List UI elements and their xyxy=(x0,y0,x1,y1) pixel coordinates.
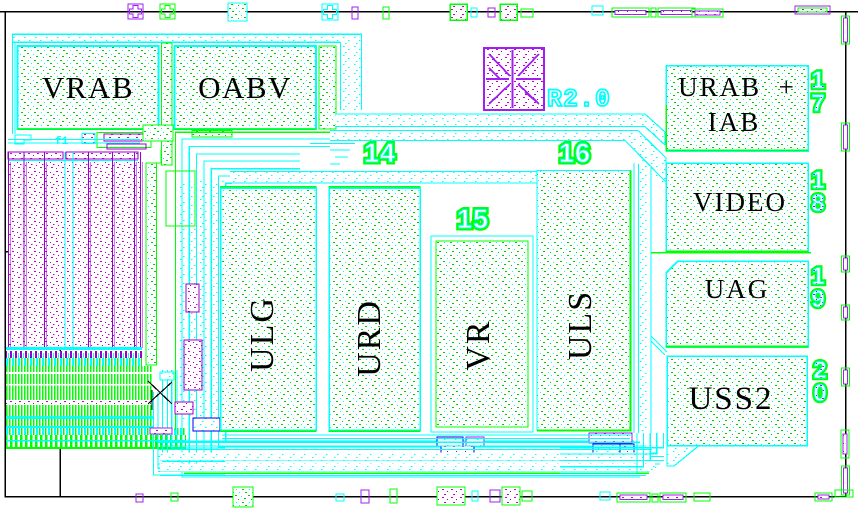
svg-text:URD: URD xyxy=(351,299,388,377)
svg-text:VIDEO: VIDEO xyxy=(693,187,787,217)
svg-text:USS2: USS2 xyxy=(688,381,773,417)
svg-text:R2.0: R2.0 xyxy=(547,85,611,114)
svg-text:14: 14 xyxy=(364,138,396,168)
svg-text:7: 7 xyxy=(811,90,824,117)
svg-text:IAB: IAB xyxy=(708,107,761,137)
svg-text:VR: VR xyxy=(460,319,497,370)
svg-text:OABV: OABV xyxy=(198,70,292,105)
svg-text:f1: f1 xyxy=(55,136,69,148)
svg-text:ULS: ULS xyxy=(562,290,599,360)
svg-text:8: 8 xyxy=(811,190,824,217)
svg-text:15: 15 xyxy=(457,204,489,234)
svg-text:ULG: ULG xyxy=(244,296,281,372)
svg-text:VRAB: VRAB xyxy=(42,70,134,105)
svg-text:9: 9 xyxy=(811,286,824,313)
svg-text:URAB +: URAB + xyxy=(678,72,796,102)
svg-text:16: 16 xyxy=(559,138,591,168)
svg-text:UAG: UAG xyxy=(705,274,770,304)
svg-text:0: 0 xyxy=(813,380,826,407)
